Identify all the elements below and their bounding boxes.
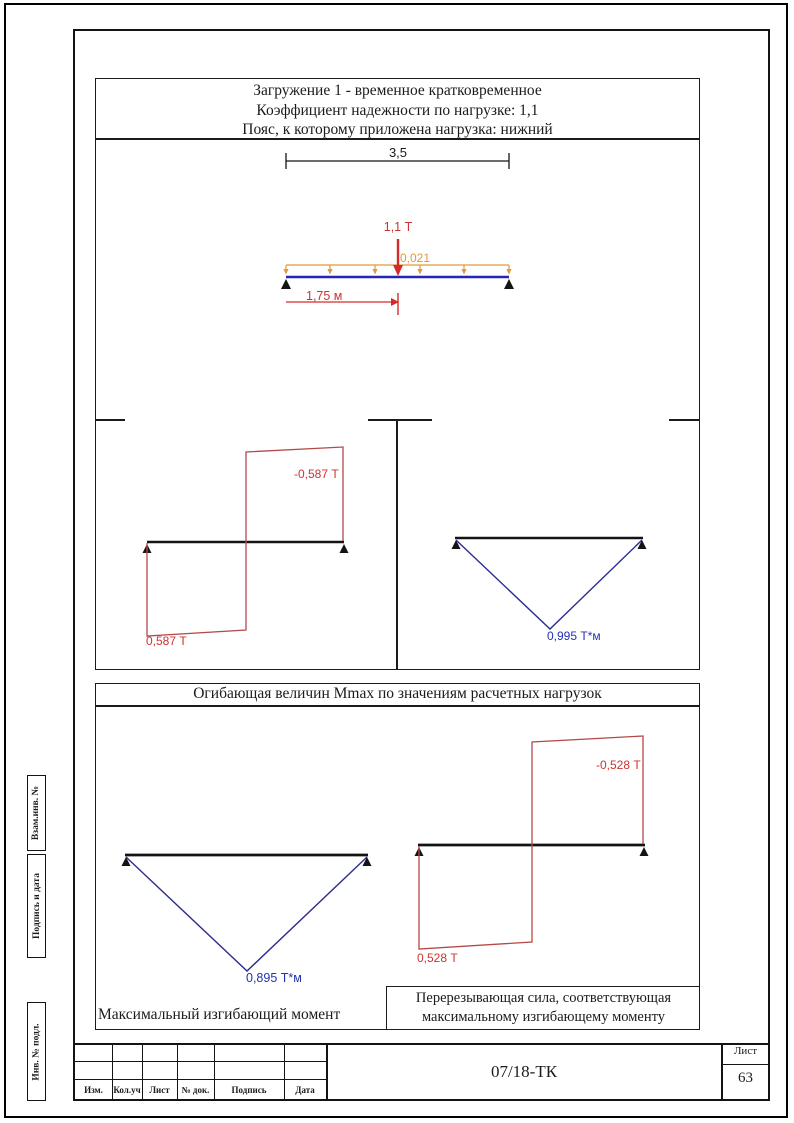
shear-caption-line2: максимальному изгибающему моменту xyxy=(387,1008,700,1027)
panel-divider-segment xyxy=(95,419,125,421)
panel-divider-vertical xyxy=(396,419,398,670)
envelope-title-divider xyxy=(95,705,700,707)
panel-divider-segment xyxy=(368,419,432,421)
load-position-label: 1,75 м xyxy=(306,289,342,303)
titleblock-col-koluch: Кол.уч xyxy=(112,1079,142,1100)
sheet-label: Лист xyxy=(721,1045,770,1057)
side-stamp-label: Подпись и дата xyxy=(32,873,42,939)
sheet-cell-divider xyxy=(721,1064,770,1065)
envelope-box xyxy=(95,683,700,1030)
titleblock-col-podpis: Подпись xyxy=(214,1079,284,1100)
load-case-chord: Пояс, к которому приложена нагрузка: ниж… xyxy=(95,120,700,140)
side-stamp-label: Инв. № подл. xyxy=(32,1023,42,1080)
side-stamp-cell: Взам.инв. № xyxy=(27,775,46,851)
point-load-label: 1,1 Т xyxy=(375,220,421,234)
span-dimension-label: 3,5 xyxy=(377,145,419,160)
side-stamp-cell: Подпись и дата xyxy=(27,854,46,958)
envelope-title: Огибающая величин Mmax по значениям расч… xyxy=(95,685,700,703)
shear-caption-box: Перерезывающая сила, соответствующая мак… xyxy=(386,986,700,1030)
doc-number: 07/18-ТК xyxy=(327,1043,721,1101)
load-case-header: Загружение 1 - временное кратковременное… xyxy=(95,81,700,140)
load-case-safety-factor: Коэффициент надежности по нагрузке: 1,1 xyxy=(95,101,700,121)
shear-caption-line1: Перерезывающая сила, соответствующая xyxy=(387,989,700,1008)
drawing-sheet: Взам.инв. № Подпись и дата Инв. № подл. … xyxy=(0,0,794,1123)
titleblock-col-izm: Изм. xyxy=(75,1079,112,1100)
shear1-negative-label: -0,587 Т xyxy=(294,467,339,481)
side-stamp-cell: Инв. № подл. xyxy=(27,1002,46,1101)
load-case-box xyxy=(95,78,700,670)
envelope-shear-positive-label: 0,528 Т xyxy=(417,951,458,965)
side-stamp-label: Взам.инв. № xyxy=(32,786,42,840)
header-divider xyxy=(95,138,700,140)
envelope-moment-max-label: 0,895 Т*м xyxy=(246,971,302,985)
sheet-number: 63 xyxy=(721,1070,770,1087)
distributed-load-label: 0,021 xyxy=(400,251,430,265)
moment1-max-label: 0,995 Т*м xyxy=(547,629,601,643)
titleblock-col-list: Лист xyxy=(142,1079,177,1100)
panel-divider-segment xyxy=(669,419,700,421)
shear1-positive-label: 0,587 Т xyxy=(146,634,187,648)
titleblock-col-data: Дата xyxy=(284,1079,326,1100)
load-case-title: Загружение 1 - временное кратковременное xyxy=(95,81,700,101)
titleblock-col-dok: № док. xyxy=(177,1079,214,1100)
envelope-shear-negative-label: -0,528 Т xyxy=(596,758,641,772)
moment-caption: Максимальный изгибающий момент xyxy=(98,1006,340,1024)
